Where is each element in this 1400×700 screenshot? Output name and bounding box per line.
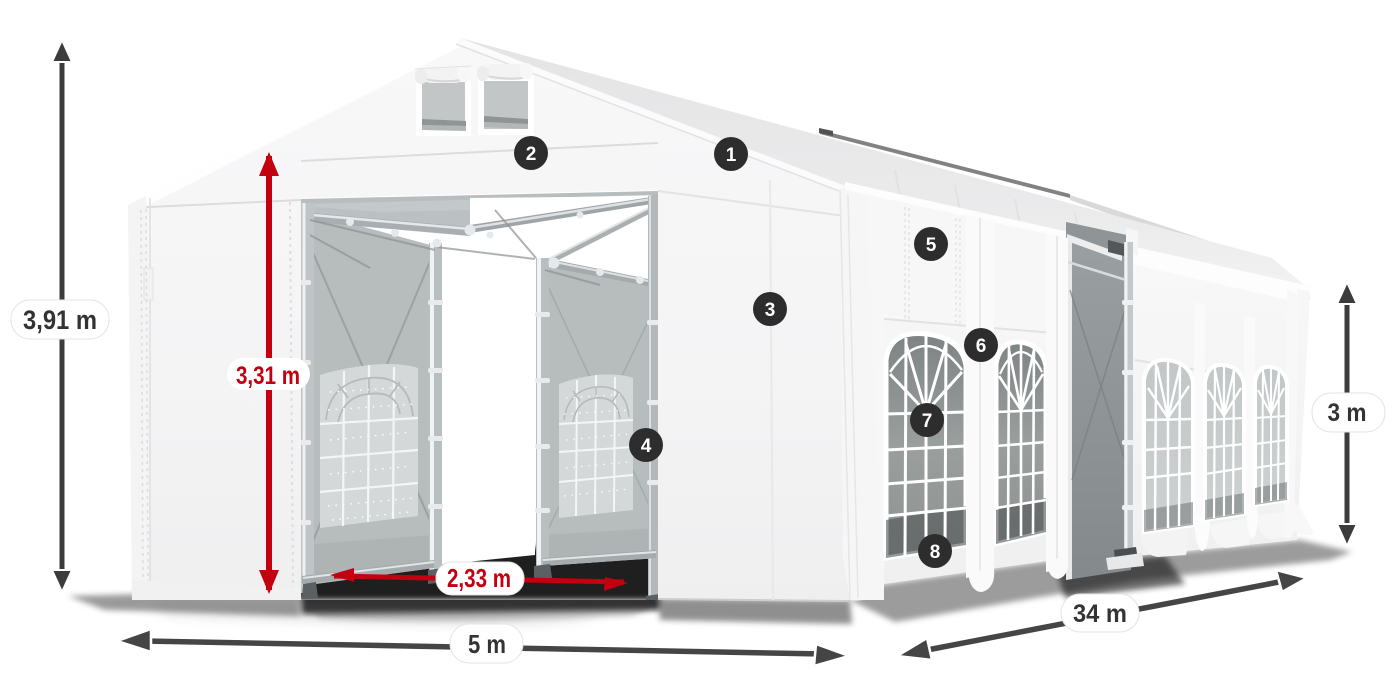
svg-text:6: 6 [976,336,987,357]
svg-text:2,33 m: 2,33 m [447,563,511,593]
svg-text:5: 5 [926,235,937,256]
svg-text:3: 3 [765,300,776,321]
svg-text:3 m: 3 m [1328,399,1367,427]
svg-text:4: 4 [641,436,652,457]
svg-text:34 m: 34 m [1073,600,1127,628]
svg-text:2: 2 [526,144,537,165]
svg-text:7: 7 [922,411,933,432]
svg-text:8: 8 [930,542,941,563]
svg-text:3,31 m: 3,31 m [236,362,300,390]
svg-text:1: 1 [726,145,737,166]
svg-text:5 m: 5 m [468,629,506,659]
svg-text:3,91 m: 3,91 m [23,305,97,335]
